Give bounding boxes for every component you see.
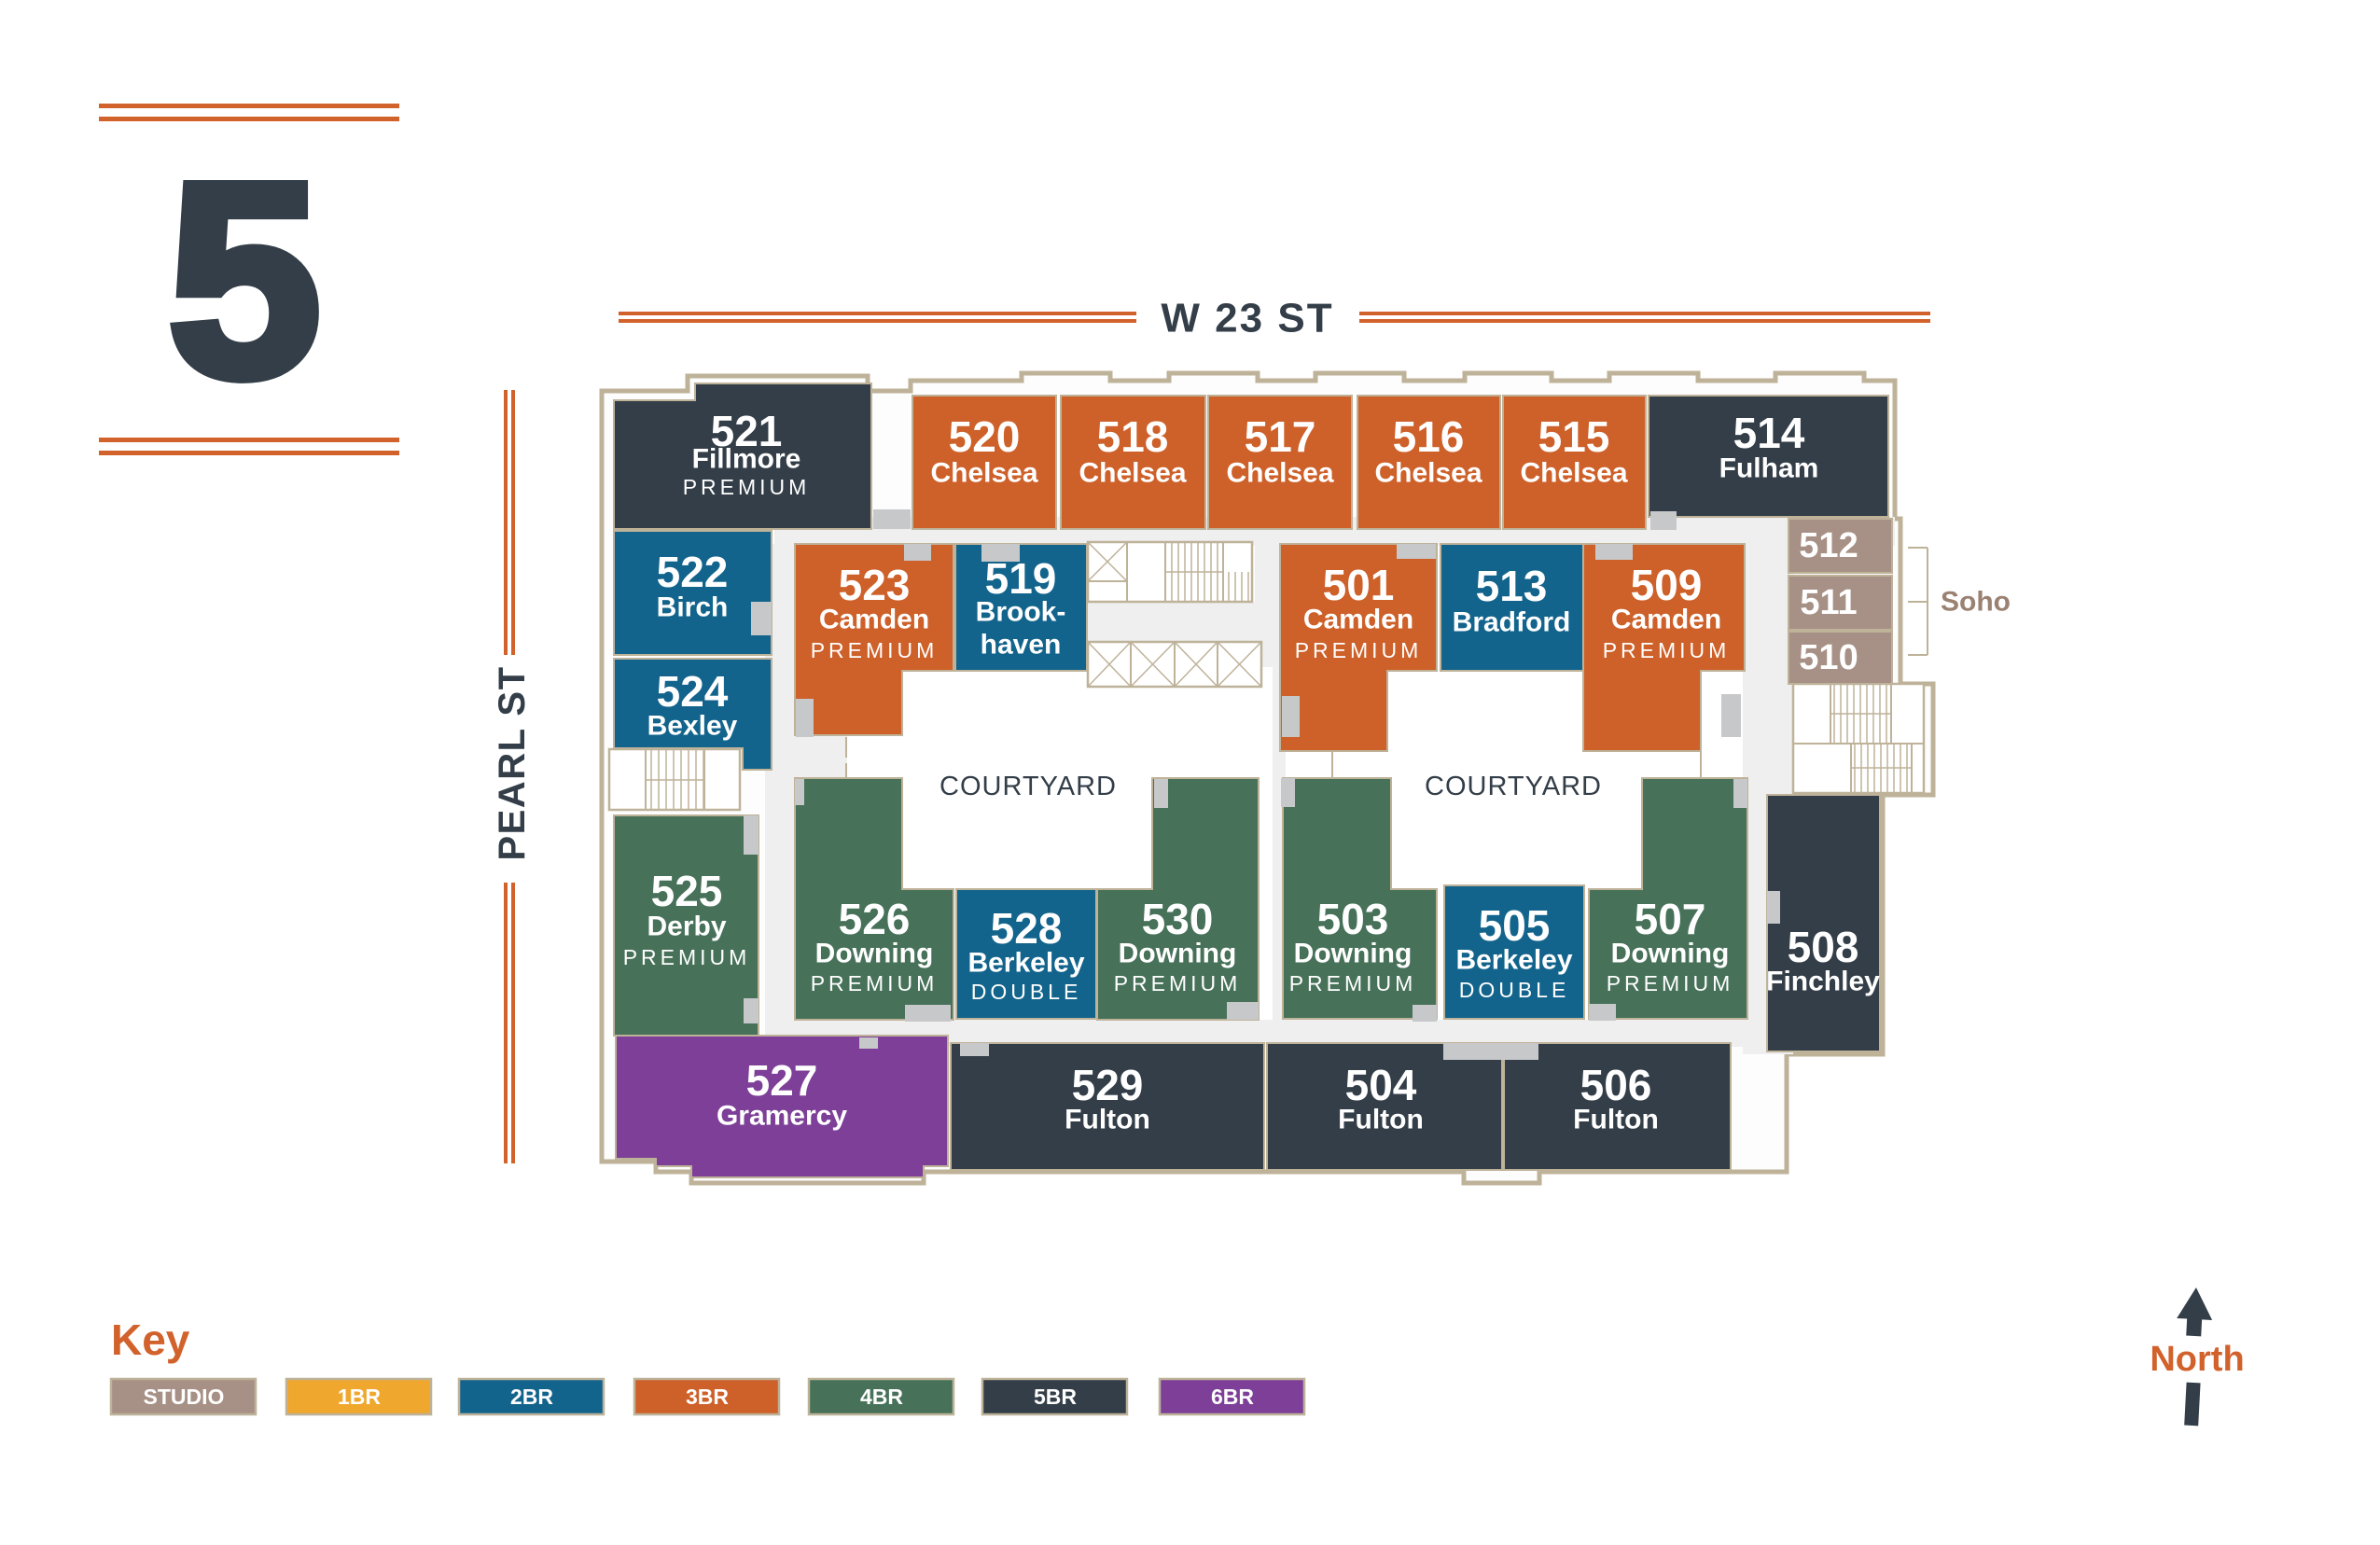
svg-text:Chelsea: Chelsea	[930, 458, 1037, 489]
svg-text:Gramercy: Gramercy	[717, 1101, 847, 1132]
svg-text:522: 522	[657, 548, 729, 596]
svg-text:529: 529	[1072, 1061, 1144, 1109]
svg-text:5BR: 5BR	[1034, 1385, 1077, 1409]
svg-text:Fillmore: Fillmore	[692, 444, 801, 475]
svg-text:520: 520	[949, 412, 1021, 461]
svg-text:PREMIUM: PREMIUM	[623, 945, 751, 969]
svg-text:PREMIUM: PREMIUM	[1289, 971, 1417, 995]
svg-text:523: 523	[839, 561, 911, 609]
svg-text:Fulton: Fulton	[1338, 1105, 1424, 1135]
svg-text:STUDIO: STUDIO	[144, 1385, 225, 1409]
svg-text:Camden: Camden	[1303, 605, 1413, 635]
svg-text:Fulton: Fulton	[1573, 1105, 1659, 1135]
svg-text:6BR: 6BR	[1211, 1385, 1254, 1409]
svg-text:5: 5	[168, 126, 321, 434]
svg-text:501: 501	[1323, 561, 1395, 609]
svg-text:530: 530	[1142, 895, 1214, 943]
svg-text:3BR: 3BR	[686, 1385, 729, 1409]
svg-text:Berkeley: Berkeley	[967, 948, 1084, 979]
svg-text:haven: haven	[981, 630, 1062, 661]
svg-text:517: 517	[1245, 412, 1316, 461]
svg-text:4BR: 4BR	[860, 1385, 903, 1409]
svg-text:Bradford: Bradford	[1453, 607, 1571, 638]
svg-text:518: 518	[1097, 412, 1169, 461]
svg-text:Fulham: Fulham	[1719, 453, 1819, 484]
svg-text:506: 506	[1580, 1061, 1652, 1109]
svg-text:513: 513	[1476, 562, 1548, 610]
svg-text:509: 509	[1631, 561, 1703, 609]
svg-text:Fulton: Fulton	[1065, 1105, 1150, 1135]
svg-text:514: 514	[1733, 409, 1805, 457]
svg-text:526: 526	[839, 895, 911, 943]
svg-text:Soho: Soho	[1941, 587, 2011, 618]
svg-text:Downing: Downing	[1294, 939, 1413, 969]
svg-text:COURTYARD: COURTYARD	[939, 772, 1117, 801]
svg-text:Chelsea: Chelsea	[1374, 458, 1482, 489]
svg-text:1BR: 1BR	[338, 1385, 381, 1409]
svg-text:2BR: 2BR	[510, 1385, 553, 1409]
svg-text:515: 515	[1538, 412, 1610, 461]
svg-text:508: 508	[1788, 923, 1859, 971]
svg-text:Brook-: Brook-	[976, 597, 1066, 628]
svg-text:PREMIUM: PREMIUM	[1114, 971, 1242, 995]
svg-text:Camden: Camden	[819, 605, 929, 635]
svg-text:Chelsea: Chelsea	[1226, 458, 1333, 489]
svg-text:COURTYARD: COURTYARD	[1425, 772, 1602, 801]
svg-text:Downing: Downing	[1119, 939, 1237, 969]
svg-text:Berkeley: Berkeley	[1455, 945, 1572, 976]
svg-text:Finchley: Finchley	[1766, 967, 1880, 997]
svg-text:Bexley: Bexley	[647, 711, 738, 742]
svg-text:DOUBLE: DOUBLE	[971, 980, 1082, 1004]
svg-text:Key: Key	[111, 1315, 190, 1364]
svg-text:527: 527	[746, 1056, 818, 1105]
svg-text:505: 505	[1479, 901, 1551, 950]
svg-text:Camden: Camden	[1611, 605, 1721, 635]
svg-text:Derby: Derby	[647, 912, 726, 942]
svg-text:PREMIUM: PREMIUM	[1295, 638, 1423, 662]
svg-text:DOUBLE: DOUBLE	[1459, 978, 1570, 1002]
svg-text:510: 510	[1799, 638, 1858, 677]
svg-text:Chelsea: Chelsea	[1079, 458, 1186, 489]
svg-text:North: North	[2150, 1340, 2244, 1379]
svg-text:PREMIUM: PREMIUM	[1603, 638, 1731, 662]
svg-text:511: 511	[1800, 583, 1857, 622]
svg-text:524: 524	[657, 667, 729, 716]
svg-text:Chelsea: Chelsea	[1520, 458, 1627, 489]
svg-text:PEARL ST: PEARL ST	[492, 665, 533, 860]
svg-text:516: 516	[1393, 412, 1465, 461]
svg-text:512: 512	[1799, 526, 1858, 565]
svg-text:528: 528	[991, 904, 1063, 953]
svg-text:503: 503	[1317, 895, 1389, 943]
svg-text:PREMIUM: PREMIUM	[1607, 971, 1734, 995]
svg-text:PREMIUM: PREMIUM	[811, 971, 939, 995]
svg-text:PREMIUM: PREMIUM	[683, 475, 811, 499]
svg-text:507: 507	[1635, 895, 1706, 943]
svg-text:Birch: Birch	[657, 592, 729, 623]
svg-text:Downing: Downing	[815, 939, 934, 969]
svg-text:504: 504	[1345, 1061, 1417, 1109]
svg-text:W 23 ST: W 23 ST	[1161, 296, 1333, 341]
svg-text:Downing: Downing	[1611, 939, 1730, 969]
svg-text:525: 525	[651, 867, 723, 915]
svg-text:PREMIUM: PREMIUM	[811, 638, 939, 662]
